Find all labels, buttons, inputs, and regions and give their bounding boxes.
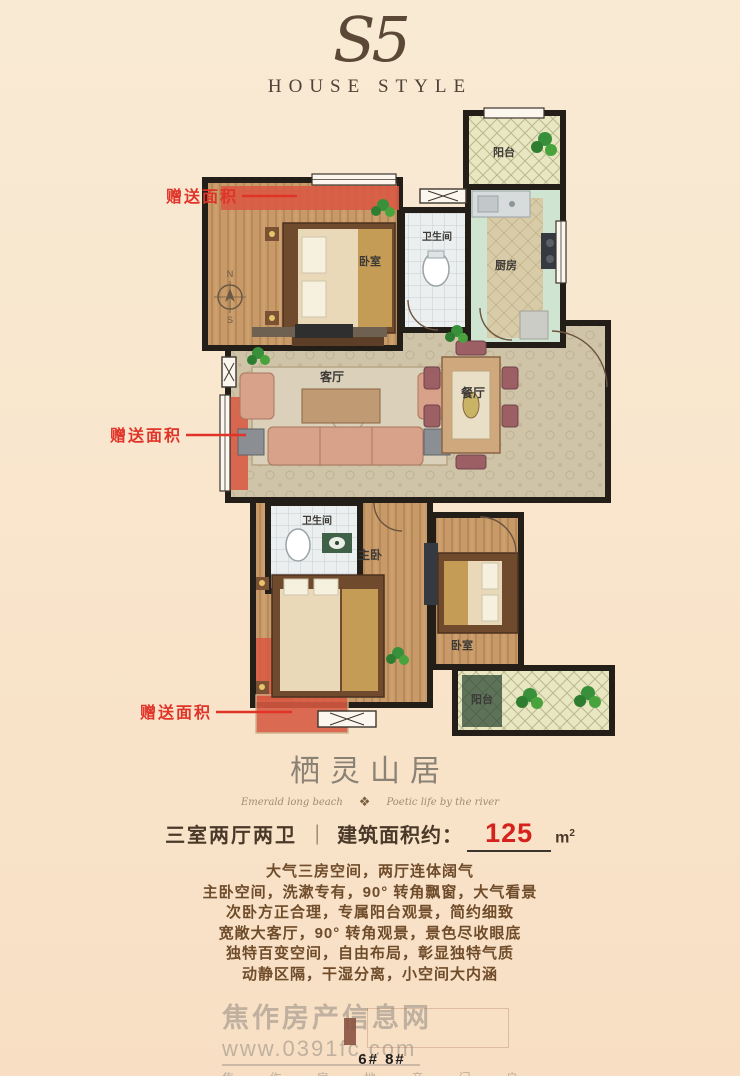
desc-line: 动静区隔，干湿分离，小空间大内涵 bbox=[0, 965, 740, 986]
spec-row: 三室两厅两卫 ｜ 建筑面积约： 125 m2 bbox=[0, 818, 740, 852]
label-dining: 餐厅 bbox=[461, 385, 485, 400]
area-value-underline: 125 bbox=[467, 818, 551, 852]
toilet-top bbox=[423, 251, 449, 286]
project-title: 栖灵山居 bbox=[0, 746, 740, 790]
watermark-slogan: 焦 作 房 地 产 门 户 bbox=[222, 1069, 534, 1076]
gift-area-top-strip bbox=[221, 186, 399, 210]
description-paragraph: 大气三房空间，两厅连体阔气 主卧空间，洗漱专有，90° 转角飘窗，大气看景 次卧… bbox=[0, 862, 740, 985]
spec-divider: ｜ bbox=[307, 819, 327, 848]
label-master: 主卧 bbox=[358, 547, 382, 562]
window-living-left bbox=[220, 395, 230, 491]
label-kitchen: 厨房 bbox=[495, 258, 517, 272]
floor-plan: N S 阳台 卫生间 厨房 卧室 客厅 餐厅 卫生间 主卧 卧室 阳台 赠送面积… bbox=[0, 105, 740, 750]
flyer-page: S5 HOUSE STYLE bbox=[0, 0, 740, 1076]
desc-line: 宽敞大客厅，90° 转角观景，景色尽收眼底 bbox=[0, 924, 740, 945]
brand-logo: S5 HOUSE STYLE bbox=[0, 4, 740, 98]
tagline-left: Emerald long beach bbox=[241, 797, 343, 808]
gift-label-left: 赠送面积 bbox=[110, 426, 182, 445]
watermark-plan-fragment bbox=[344, 1018, 356, 1045]
project-tagline: Emerald long beach ❖ Poetic life by the … bbox=[0, 795, 740, 810]
gift-label-top: 赠送面积 bbox=[166, 187, 238, 206]
area-unit-sup: 2 bbox=[569, 828, 575, 839]
label-living: 客厅 bbox=[319, 369, 344, 384]
area-label: 建筑面积约： bbox=[337, 819, 463, 848]
desc-line: 次卧方正合理，专属阳台观景，简约细致 bbox=[0, 903, 740, 924]
gift-label-bottom: 赠送面积 bbox=[140, 703, 212, 722]
bed-bedroom-bottom bbox=[438, 553, 518, 633]
label-balcony-top: 阳台 bbox=[493, 145, 515, 159]
ac-window-top bbox=[420, 189, 466, 203]
window-balcony-top bbox=[484, 108, 544, 118]
watermark-plan-outline bbox=[367, 1008, 509, 1048]
area-unit-base: m bbox=[555, 829, 569, 846]
desc-line: 大气三房空间，两厅连体阔气 bbox=[0, 862, 740, 883]
area-unit: m2 bbox=[555, 828, 575, 847]
brand-mark-s5: S5 bbox=[0, 4, 740, 76]
ac-window-left bbox=[222, 357, 236, 387]
ac-window-bottom bbox=[318, 711, 376, 727]
label-bedroom-bottom: 卧室 bbox=[451, 638, 473, 652]
area-value: 125 bbox=[485, 818, 533, 848]
desc-line: 主卧空间，洗漱专有，90° 转角飘窗，大气看景 bbox=[0, 883, 740, 904]
window-bedroom-top bbox=[312, 174, 396, 185]
tagline-ornament-icon: ❖ bbox=[359, 795, 371, 810]
building-numbers: 6# 8# bbox=[358, 1051, 406, 1068]
tagline-right: Poetic life by the river bbox=[386, 797, 499, 808]
compass-north-label: N bbox=[227, 269, 234, 279]
layout-text: 三室两厅两卫 bbox=[165, 819, 297, 848]
label-bath-bottom: 卫生间 bbox=[302, 514, 332, 527]
desc-line: 独特百变空间，自由布局，彰显独特气质 bbox=[0, 944, 740, 965]
label-bedroom-top: 卧室 bbox=[359, 254, 381, 268]
compass-south-label: S bbox=[227, 315, 233, 325]
label-bath-top: 卫生间 bbox=[422, 230, 452, 243]
brand-subtitle: HOUSE STYLE bbox=[0, 76, 740, 98]
window-kitchen-right bbox=[556, 221, 566, 283]
label-balcony-bottom: 阳台 bbox=[471, 692, 493, 706]
